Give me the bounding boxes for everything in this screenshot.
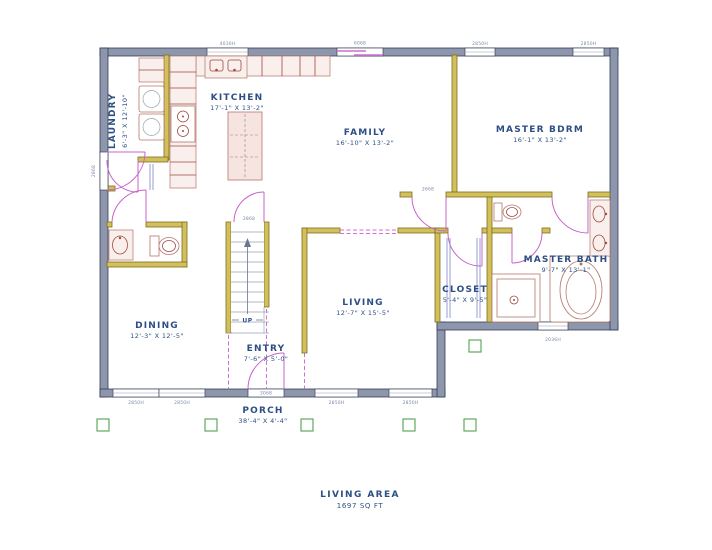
room-label-family: FAMILY <box>344 128 386 138</box>
master-bath-door <box>552 197 588 233</box>
room-label-porch: PORCH <box>242 406 283 416</box>
kitchen-cabinets <box>170 56 330 188</box>
floor-plan-page: UP <box>0 0 712 550</box>
room-label-laundry: LAUNDRY <box>108 93 118 149</box>
powder-room-fixtures <box>109 230 179 260</box>
callout-dining-window-left: 2850H <box>128 400 144 406</box>
callout-front-door: 3068 <box>260 391 272 397</box>
master-bedroom-door <box>412 197 446 231</box>
living-area-label: LIVING AREA <box>320 490 400 500</box>
area-summary: LIVING AREA 1697 SQ FT <box>320 490 400 510</box>
callout-family-slider: 6068 <box>354 41 366 47</box>
callout-left-wall-door: 2868 <box>91 165 97 177</box>
laundry-closet-rod <box>150 164 153 190</box>
room-dims-laundry: 6'-3" X 12'-10" <box>121 94 129 148</box>
living-area-value: 1697 SQ FT <box>337 502 384 510</box>
room-dims-kitchen: 17'-1" X 13'-2" <box>210 104 264 112</box>
shower <box>492 274 540 322</box>
room-label-dining: DINING <box>135 321 179 331</box>
room-dims-master-bdrm: 16'-1" X 13'-2" <box>513 136 567 144</box>
room-dims-living: 12'-7" X 15'-5" <box>336 309 390 317</box>
dryer <box>139 114 164 140</box>
room-dims-family: 16'-10" X 13'-2" <box>336 139 394 147</box>
stairs-up-label: UP <box>242 318 252 325</box>
powder-door <box>112 190 146 222</box>
room-label-entry: ENTRY <box>247 344 286 354</box>
room-label-master-bath: MASTER BATH <box>524 255 609 265</box>
room-label-master-bdrm: MASTER BDRM <box>496 125 584 135</box>
range <box>171 106 195 142</box>
laundry-fixtures <box>139 58 164 190</box>
washer <box>139 86 164 112</box>
callout-master-window-left: 2850H <box>472 41 488 47</box>
room-label-living: LIVING <box>342 298 384 308</box>
room-dims-dining: 12'-3" X 12'-5" <box>130 332 184 340</box>
callout-bath-window: 2036H <box>545 337 561 343</box>
closet-rods <box>447 238 480 318</box>
kitchen-island <box>228 112 262 180</box>
sliding-door <box>337 48 383 56</box>
callout-living-window-right: 2850H <box>403 400 419 406</box>
powder-toilet <box>150 236 179 256</box>
callout-master-window-right: 2850H <box>581 41 597 47</box>
master-toilet <box>494 203 521 221</box>
porch-posts <box>97 340 481 431</box>
room-dims-entry: 7'-6" X 5'-0" <box>244 355 289 363</box>
callout-living-window-left: 2850H <box>329 400 345 406</box>
room-label-closet: CLOSET <box>442 285 488 295</box>
double-vanity <box>590 200 610 258</box>
kitchen-sink <box>205 56 247 78</box>
stairs: UP <box>226 222 269 333</box>
room-dims-porch: 38'-4" X 4'-4" <box>238 417 287 425</box>
room-label-kitchen: KITCHEN <box>211 93 264 103</box>
callout-dining-window-right: 2850H <box>174 400 190 406</box>
callout-stair-door: 2868 <box>243 216 255 222</box>
floor-plan-canvas: UP <box>0 0 712 550</box>
room-dims-closet: 5'-4" X 9'-5" <box>443 296 488 304</box>
callout-bedroom-door: 2668 <box>422 187 434 193</box>
callout-kitchen-window: 4030H <box>220 41 236 47</box>
room-dims-master-bath: 9'-7" X 13'-1" <box>541 266 590 274</box>
